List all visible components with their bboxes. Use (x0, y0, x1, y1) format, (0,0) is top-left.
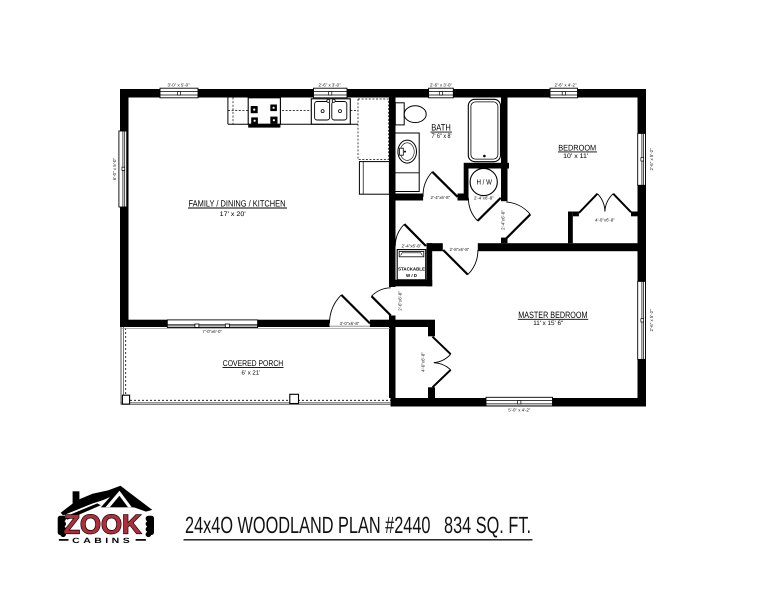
svg-text:4'-0"x6'-8": 4'-0"x6'-8" (595, 217, 615, 222)
svg-text:17' x 20': 17' x 20' (220, 211, 246, 218)
svg-text:2'-6" x 3'-0": 2'-6" x 3'-0" (430, 82, 453, 87)
svg-text:MASTER BEDROOM: MASTER BEDROOM (518, 310, 587, 320)
svg-text:24x4O WOODLAND PLAN #2440 83: 24x4O WOODLAND PLAN #2440 834 SQ. FT. (185, 512, 531, 538)
svg-text:4'-0"x6'-8": 4'-0"x6'-8" (421, 352, 426, 372)
svg-text:11' x 15' 6": 11' x 15' 6" (533, 320, 563, 327)
svg-text:2'-8"x6'-8": 2'-8"x6'-8" (450, 247, 470, 252)
svg-text:2'-4"x6'-8": 2'-4"x6'-8" (501, 210, 506, 230)
svg-text:BATH: BATH (431, 123, 451, 133)
svg-text:STACKABLE: STACKABLE (398, 267, 425, 272)
svg-text:2'-6" x 5'-2": 2'-6" x 5'-2" (649, 148, 654, 171)
svg-text:10' x 11': 10' x 11' (563, 153, 588, 160)
svg-text:BEDROOM: BEDROOM (558, 143, 596, 152)
svg-text:2'-6" x 4'-2": 2'-6" x 4'-2" (554, 82, 577, 87)
svg-text:6' x 21': 6' x 21' (242, 369, 261, 376)
svg-text:2'-4"x6'-8": 2'-4"x6'-8" (430, 195, 450, 200)
svg-text:COVERED PORCH: COVERED PORCH (223, 358, 283, 368)
svg-text:6'-0" x 5'-0": 6'-0" x 5'-0" (112, 158, 117, 181)
svg-text:5'-0" x 4'-2": 5'-0" x 4'-2" (508, 407, 531, 412)
svg-text:H / W: H / W (476, 178, 492, 187)
svg-text:2'-6"x6'-8": 2'-6"x6'-8" (397, 291, 402, 311)
svg-text:7' 6" x 8': 7' 6" x 8' (432, 133, 452, 140)
svg-text:2'-6" x 3'-0": 2'-6" x 3'-0" (319, 82, 342, 87)
svg-text:W / D: W / D (406, 273, 417, 278)
svg-text:FAMILY / DINING / KITCHEN: FAMILY / DINING / KITCHEN (189, 199, 286, 209)
svg-text:2'-4"x6'-8": 2'-4"x6'-8" (474, 195, 494, 200)
svg-text:CABINS: CABINS (72, 536, 133, 545)
svg-text:2'-4"x6'-8": 2'-4"x6'-8" (402, 244, 422, 249)
svg-text:3'-0" x 5'-0": 3'-0" x 5'-0" (168, 82, 191, 87)
svg-text:3'-0"x6'-8": 3'-0"x6'-8" (340, 321, 360, 326)
svg-text:7'-0"x6'-0": 7'-0"x6'-0" (202, 329, 222, 334)
svg-text:2'-6" x 5'-2": 2'-6" x 5'-2" (649, 309, 654, 332)
